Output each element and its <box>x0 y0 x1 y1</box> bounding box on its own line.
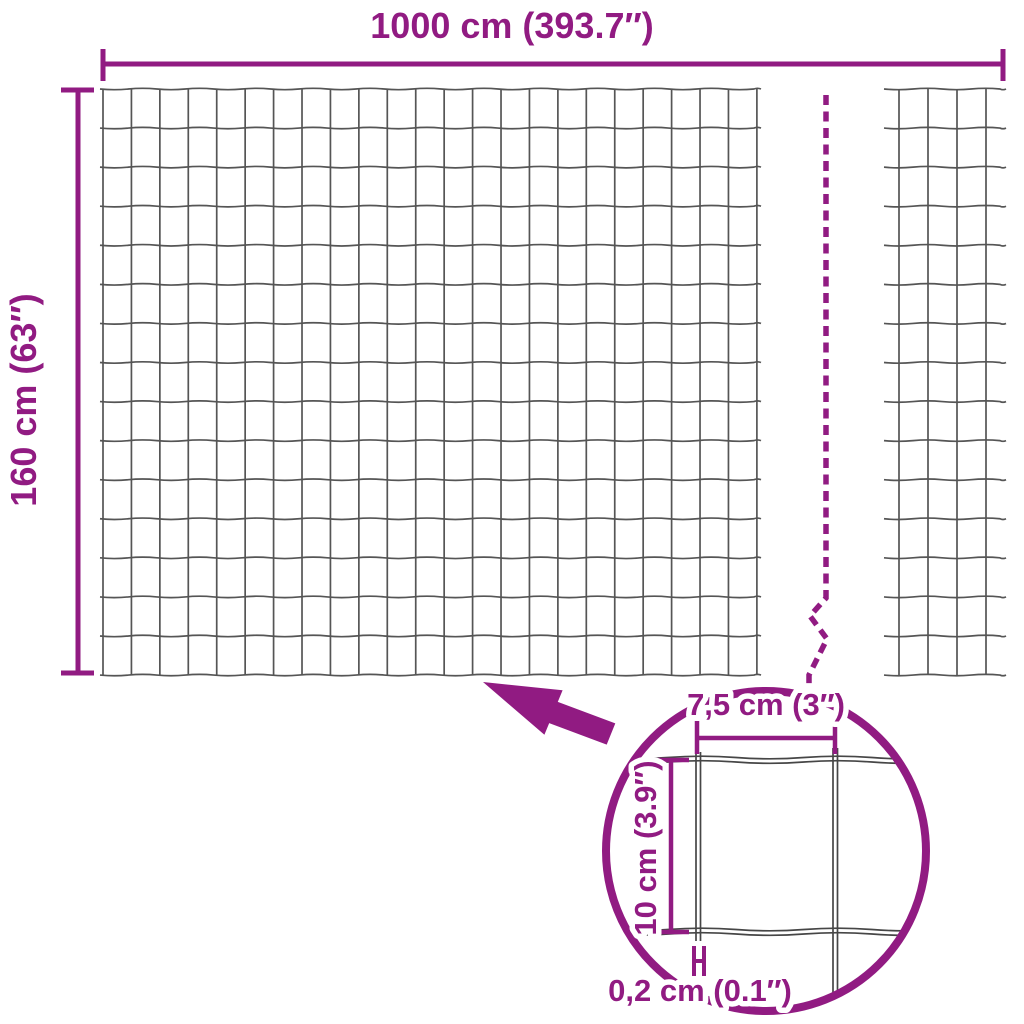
mesh-horizontal-wire <box>100 166 761 167</box>
dimension-wire-thickness <box>694 946 704 976</box>
diagram-svg: 1000 cm (393.7″) 160 cm (63″) <box>0 0 1024 1024</box>
mesh-horizontal-wire <box>884 206 1006 207</box>
mesh-horizontal-wire <box>100 323 761 324</box>
detail-pointer-arrow-icon <box>483 682 615 745</box>
mesh-horizontal-wire <box>100 127 761 128</box>
mesh-horizontal-wire <box>100 557 761 558</box>
wire-thickness-label: 0,2 cm (0.1″) <box>608 973 792 1008</box>
mesh-horizontal-wire <box>884 362 1006 363</box>
mesh-horizontal-wire <box>100 479 761 480</box>
mesh-horizontal-wire <box>100 401 761 402</box>
mesh-horizontal-wire <box>884 518 1006 519</box>
mesh-horizontal-wire <box>100 362 761 363</box>
mesh-horizontal-wire <box>884 88 1006 89</box>
mesh-horizontal-wire <box>100 518 761 519</box>
detail-horizontal-wire <box>600 756 935 759</box>
cell-width-label: 7,5 cm (3″) <box>687 687 845 722</box>
mesh-horizontal-wire <box>884 323 1006 324</box>
mesh-horizontal-wire <box>100 245 761 246</box>
break-line <box>809 95 827 692</box>
mesh-horizontal-wire <box>884 401 1006 402</box>
total-width-label: 1000 cm (393.7″) <box>370 5 653 46</box>
mesh-panel-right <box>884 88 1006 675</box>
dimension-total-width <box>103 49 1003 81</box>
mesh-horizontal-wire <box>884 635 1006 636</box>
mesh-horizontal-wire <box>100 440 761 441</box>
mesh-horizontal-wire <box>884 557 1006 558</box>
dimension-cell-width <box>697 721 835 754</box>
mesh-panel-left <box>100 88 761 675</box>
mesh-horizontal-wire <box>884 166 1006 167</box>
mesh-horizontal-wire <box>884 596 1006 597</box>
mesh-horizontal-wire <box>884 440 1006 441</box>
mesh-horizontal-wire <box>100 88 761 89</box>
mesh-horizontal-wire <box>100 674 761 675</box>
total-height-label: 160 cm (63″) <box>3 293 44 506</box>
mesh-horizontal-wire <box>100 206 761 207</box>
mesh-horizontal-wire <box>100 284 761 285</box>
product-dimension-diagram: 1000 cm (393.7″) 160 cm (63″) <box>0 0 1024 1024</box>
mesh-horizontal-wire <box>884 479 1006 480</box>
mesh-horizontal-wire <box>100 635 761 636</box>
mesh-horizontal-wire <box>100 596 761 597</box>
mesh-horizontal-wire <box>884 674 1006 675</box>
dimension-total-height <box>61 90 94 673</box>
mesh-horizontal-wire <box>884 245 1006 246</box>
cell-height-label: 10 cm (3.9″) <box>628 760 663 935</box>
mesh-horizontal-wire <box>884 127 1006 128</box>
mesh-horizontal-wire <box>884 284 1006 285</box>
